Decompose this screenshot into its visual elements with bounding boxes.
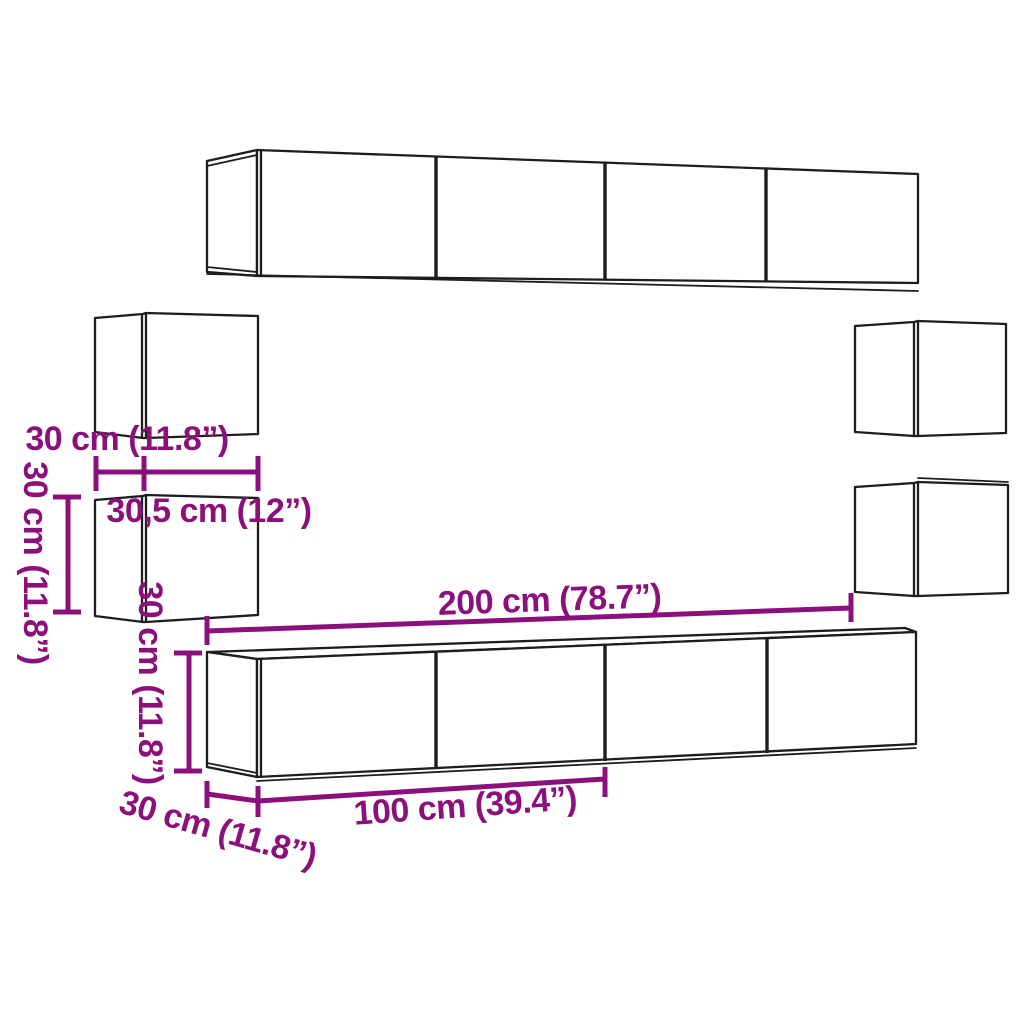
cabinet-side-panel [207,652,257,777]
dimension-line-depth [207,794,258,801]
dimension-diagram: 30 cm (11.8”) 30,5 cm (12”) 30 cm (11.8”… [0,0,1024,1024]
label-left-front-width: 30,5 cm (12”) [106,492,311,530]
cabinet-side-panel [207,150,257,276]
label-tv-module-length: 100 cm (39.4”) [352,779,578,833]
label-left-side-depth: 30 cm (11.8”) [25,420,228,458]
upper-right-cube-cabinet [855,321,1006,436]
lower-right-cube-cabinet [855,478,1008,596]
top-wall-cabinet [207,150,918,291]
label-tv-total-length: 200 cm (78.7”) [437,577,662,623]
label-left-cabinet-height: 30 cm (11.8”) [16,461,54,664]
bottom-tv-cabinet [207,628,916,781]
furniture-dimension-drawing: 30 cm (11.8”) 30,5 cm (12”) 30 cm (11.8”… [0,0,1024,1024]
cabinet-body [855,321,1006,436]
cabinet-front-face [257,150,918,283]
cabinet-body [855,482,1008,596]
label-tv-cabinet-height: 30 cm (11.8”) [131,581,169,784]
